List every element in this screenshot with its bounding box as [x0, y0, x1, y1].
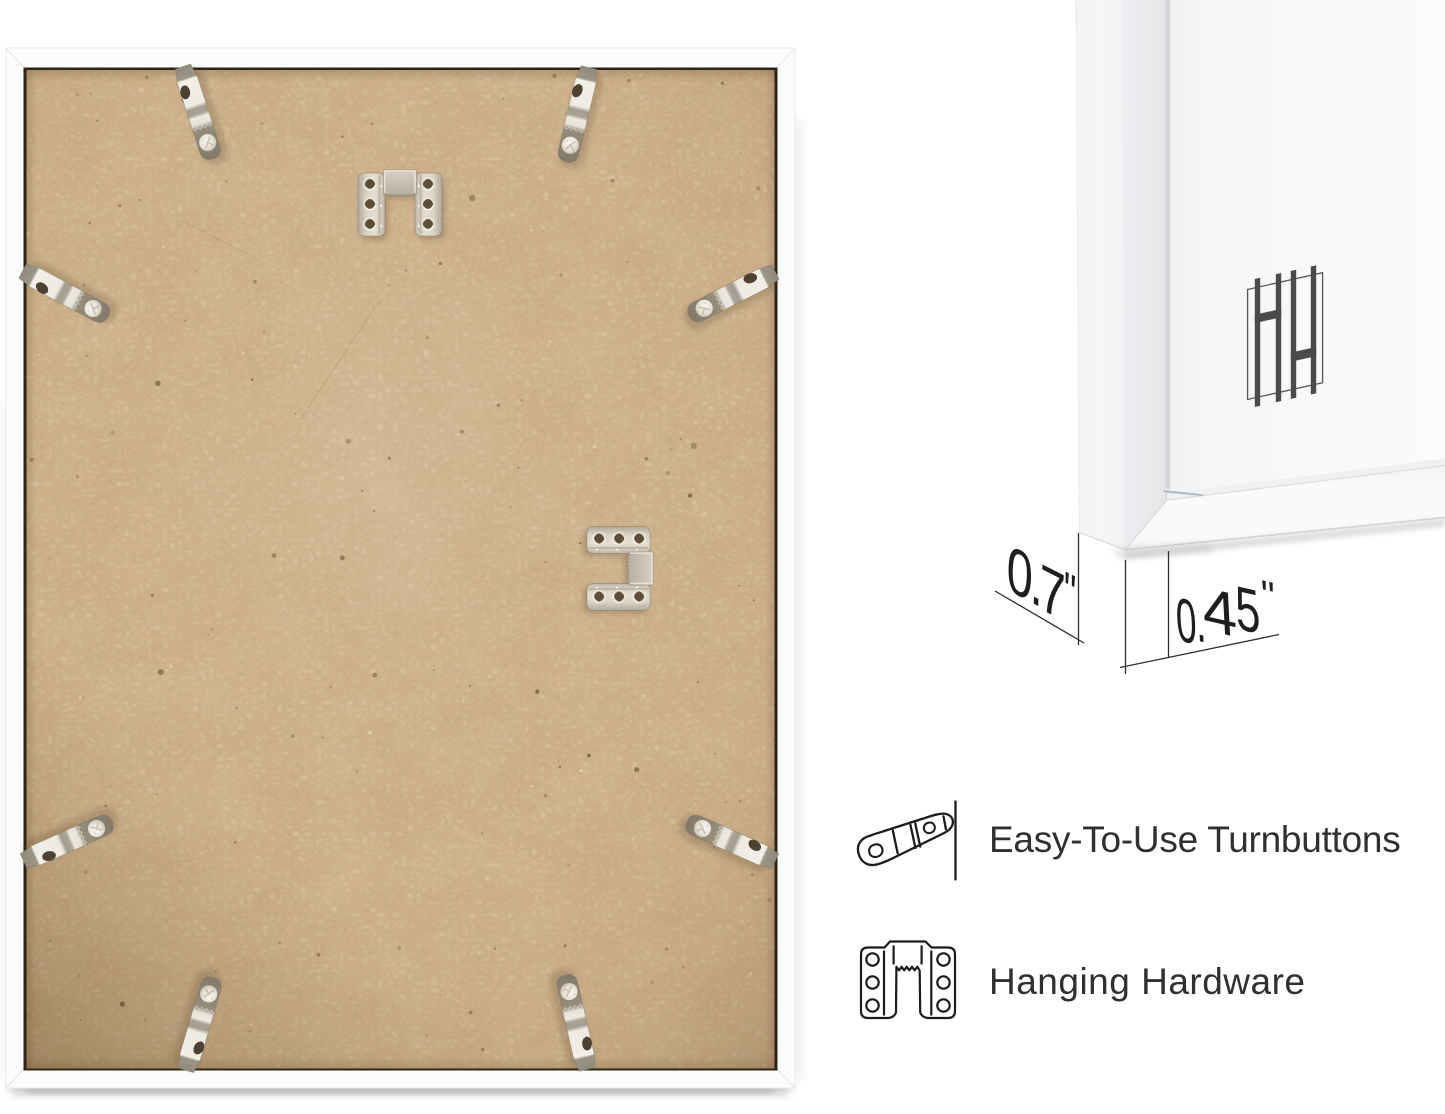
svg-text:4: 4: [1201, 574, 1239, 651]
svg-text:5: 5: [1234, 573, 1262, 648]
svg-text:Hanging Hardware: Hanging Hardware: [989, 961, 1306, 1002]
svg-text:Easy-To-Use Turnbuttons: Easy-To-Use Turnbuttons: [989, 819, 1400, 860]
svg-text:": ": [1063, 560, 1077, 624]
svg-text:7: 7: [1038, 549, 1067, 636]
svg-text:": ": [1260, 571, 1276, 621]
